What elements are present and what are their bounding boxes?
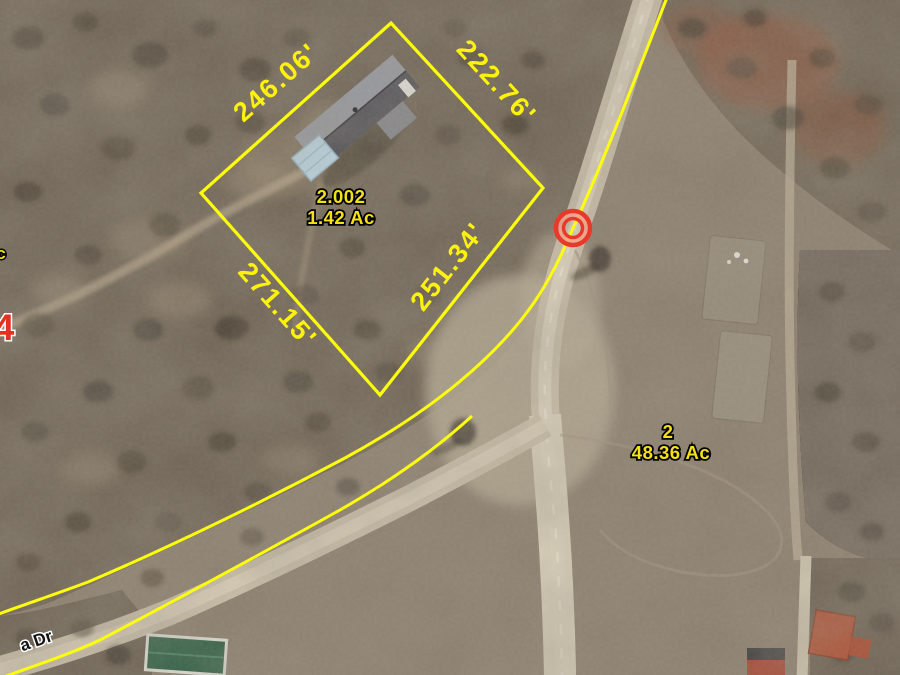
row-boundary-south — [6, 416, 472, 675]
adjacent-parcel-id: 2 — [663, 421, 674, 442]
row-boundary-north — [0, 0, 668, 615]
dimension-label-northwest: 246.06' — [228, 37, 325, 128]
focus-parcel-id: 2.002 — [317, 186, 366, 207]
aerial-map[interactable]: 246.06' 222.76' 271.15' 251.34' 2.002 1.… — [0, 0, 900, 675]
dimension-label-southeast: 251.34' — [404, 217, 491, 317]
road-name-label: a Dr — [17, 626, 55, 655]
adjacent-parcel-area: 48.36 Ac — [632, 442, 710, 463]
dimension-label-southwest: 271.15' — [232, 257, 323, 354]
dimension-label-northeast: 222.76' — [451, 34, 543, 130]
partial-area-label: c — [0, 244, 6, 263]
route-number-label: 4 — [0, 307, 15, 348]
parcel-overlay: 246.06' 222.76' 271.15' 251.34' 2.002 1.… — [0, 0, 900, 675]
focus-parcel-area: 1.42 Ac — [307, 207, 375, 228]
